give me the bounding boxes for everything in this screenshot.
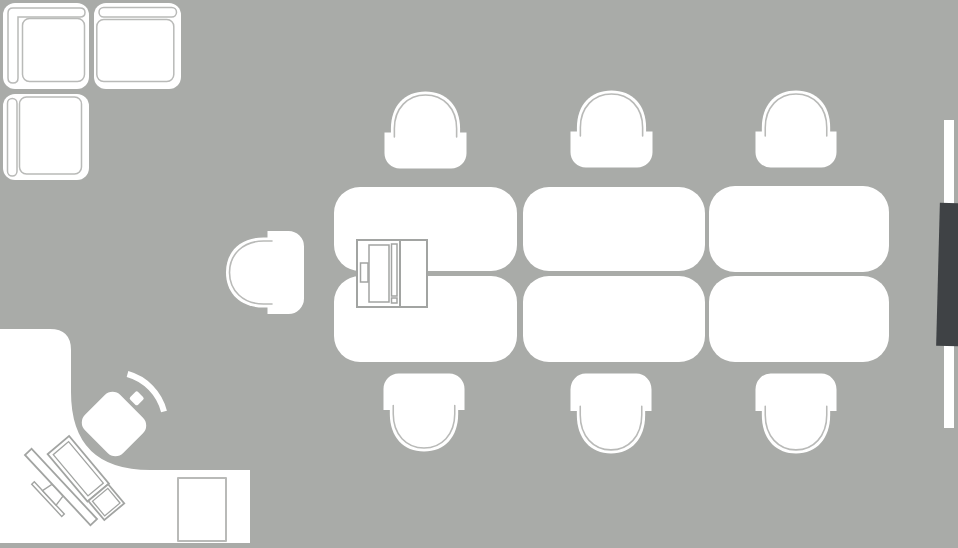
tv-screen[interactable]: [936, 203, 958, 347]
printer-slot: [392, 244, 398, 296]
sofa-corner-module[interactable]: [3, 3, 89, 89]
printer[interactable]: [356, 239, 428, 308]
table-bottom-2[interactable]: [523, 276, 705, 362]
printer-paper: [369, 245, 389, 302]
chair-bottom-1[interactable]: [383, 373, 465, 452]
cabinet[interactable]: [177, 477, 227, 542]
chair-bottom-3[interactable]: [755, 373, 837, 454]
sofa-bottom-armrest: [8, 99, 18, 177]
printer-button: [392, 298, 398, 303]
printer-tray: [361, 263, 369, 282]
sofa-corner-seat: [23, 19, 85, 82]
chair-top-1[interactable]: [384, 91, 467, 169]
sofa-bottom-seat: [20, 97, 82, 174]
sofa-right-module[interactable]: [94, 3, 181, 89]
table-bottom-3[interactable]: [709, 276, 889, 362]
office-chair-backrest: [128, 374, 165, 412]
table-top-3[interactable]: [709, 186, 889, 272]
chair-top-3[interactable]: [755, 90, 837, 168]
sofa-right-seat: [97, 20, 174, 82]
desk-keyboard[interactable]: [40, 430, 140, 530]
office-chair-connector: [129, 391, 145, 407]
sofa-bottom-module[interactable]: [3, 94, 89, 180]
sofa-right-backrest: [99, 8, 177, 18]
lounge-chair[interactable]: [226, 231, 305, 315]
chair-top-2[interactable]: [570, 90, 653, 168]
chair-bottom-2[interactable]: [570, 373, 652, 454]
table-top-2[interactable]: [523, 187, 705, 271]
